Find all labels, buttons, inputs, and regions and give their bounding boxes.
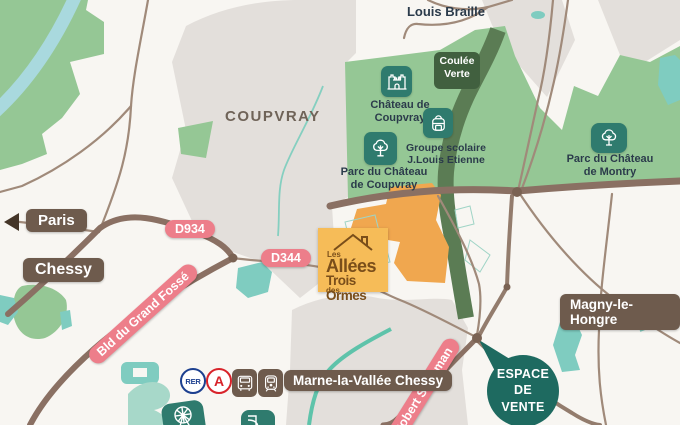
parc-coupvray-label: Parc du Château de Coupvray [336, 166, 432, 192]
castle-glyph [385, 70, 409, 94]
parc-coupvray-line1: Parc du Château [336, 166, 432, 179]
train-glyph [261, 372, 281, 394]
espace-line1: ESPACE [483, 366, 563, 382]
d934-badge: D934 [165, 220, 215, 238]
line-a-logo[interactable]: A [206, 368, 232, 394]
d344-badge: D344 [261, 249, 311, 267]
espace-line3: VENTE [483, 399, 563, 415]
tree-icon-coupvray[interactable] [364, 132, 397, 165]
rer-logo[interactable]: RER [180, 368, 206, 394]
louis-braille-label: Louis Braille [396, 4, 496, 19]
tree-glyph [368, 136, 393, 161]
parc-montry-label: Parc du Château de Montry [562, 153, 658, 179]
groupe-line1: Groupe scolaire [398, 142, 494, 154]
espace-line2: DE [483, 382, 563, 398]
playground-icon[interactable] [241, 410, 275, 425]
backpack-icon[interactable] [423, 108, 453, 138]
house-icon [326, 230, 380, 252]
groupe-scolaire-label: Groupe scolaire J.Louis Etienne [398, 142, 494, 167]
bus-icon[interactable] [232, 369, 257, 397]
parc-coupvray-line2: de Coupvray [336, 179, 432, 192]
groupe-line2: J.Louis Etienne [398, 154, 494, 166]
train-icon[interactable] [258, 369, 283, 397]
bus-glyph [235, 372, 255, 394]
paris-badge: Paris [26, 209, 87, 232]
coulee-verte-badge: Coulée Verte [434, 52, 480, 89]
paris-arrow-icon [4, 213, 19, 231]
espace-de-vente-label[interactable]: ESPACE DE VENTE [483, 366, 563, 415]
coulee-verte-line2: Verte [434, 68, 480, 81]
junction-dot-espace [472, 333, 482, 343]
ferris-wheel-icon[interactable] [160, 399, 207, 425]
parc-montry-line1: Parc du Château [562, 153, 658, 166]
magny-badge: Magny-le-Hongre [560, 294, 680, 330]
parc-montry-line2: de Montry [562, 166, 658, 179]
castle-icon[interactable] [381, 66, 412, 97]
marne-station-badge: Marne-la-Vallée Chessy [284, 370, 452, 391]
chessy-badge: Chessy [23, 258, 104, 282]
tree-icon-montry[interactable] [591, 123, 627, 153]
map: Louis Braille COUPVRAY Coulée Verte Chât… [0, 0, 680, 425]
backpack-glyph [427, 112, 450, 135]
tree-glyph [597, 126, 621, 150]
coulee-verte-line1: Coulée [434, 55, 480, 68]
project-name-2: Trois Ormes [326, 273, 388, 303]
project-badge[interactable]: Les Allées des Trois Ormes [318, 228, 388, 292]
green-patch-chessy [13, 285, 67, 339]
coupvray-label: COUPVRAY [225, 108, 321, 125]
